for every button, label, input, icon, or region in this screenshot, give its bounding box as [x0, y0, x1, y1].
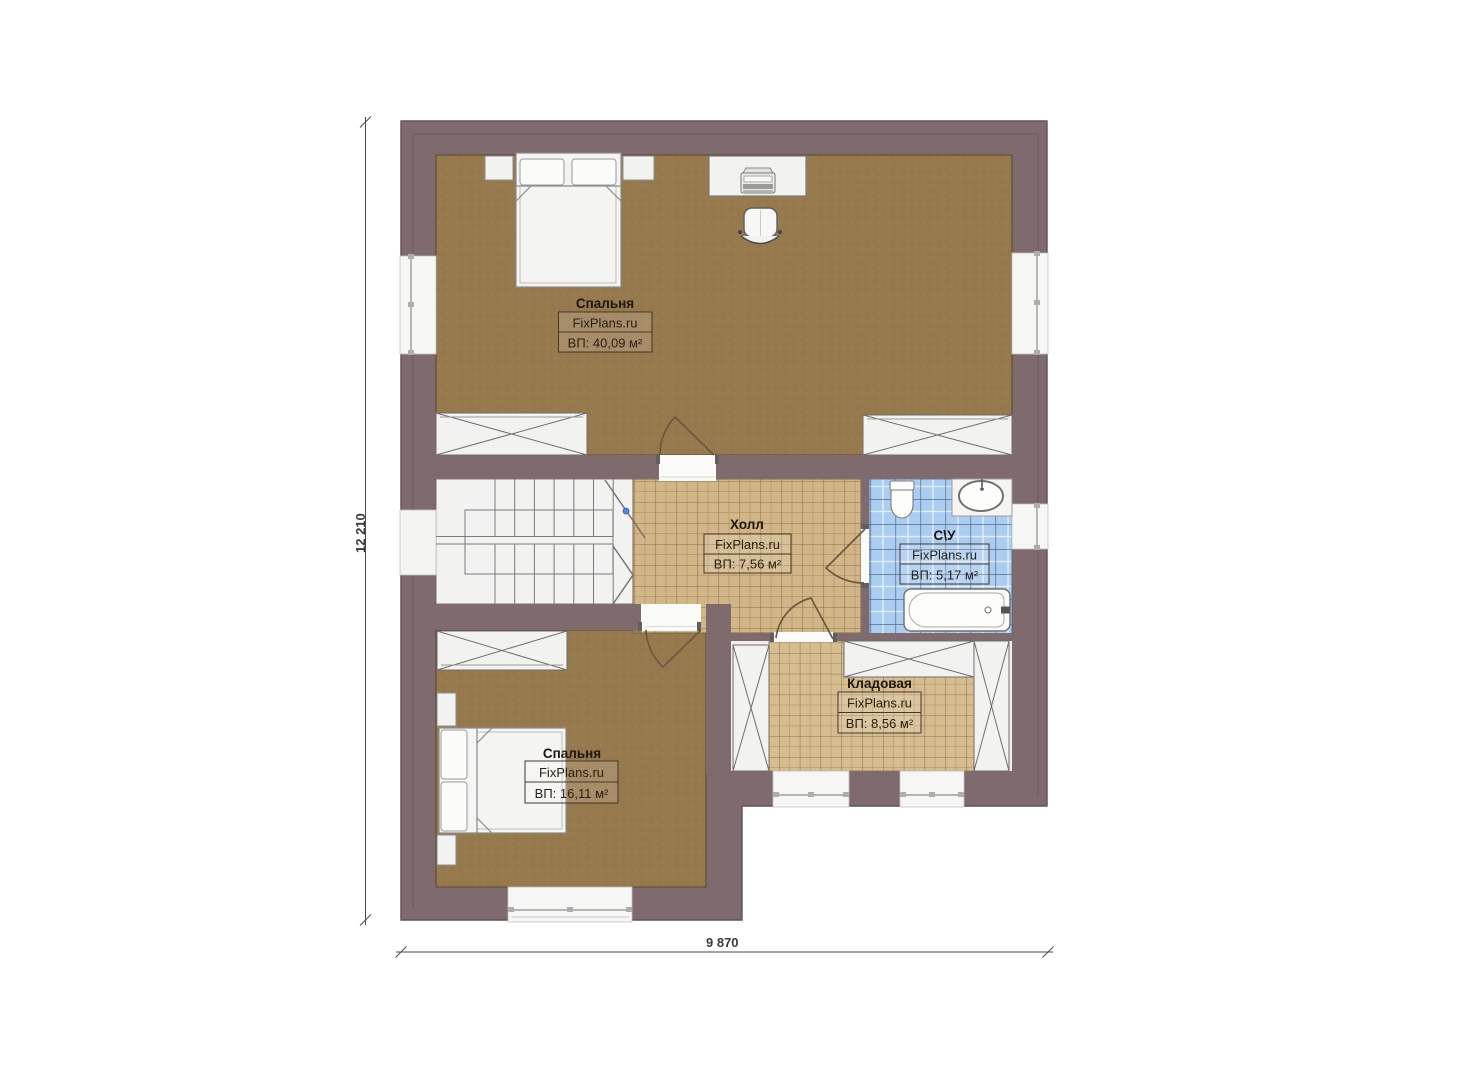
svg-text:ВП: 5,17 м²: ВП: 5,17 м²	[911, 568, 979, 583]
svg-text:Спальня: Спальня	[576, 296, 634, 311]
svg-text:С\У: С\У	[934, 528, 957, 543]
svg-text:12 210: 12 210	[353, 513, 368, 553]
svg-text:ВП: 40,09 м²: ВП: 40,09 м²	[568, 336, 643, 351]
svg-text:FixPlans.ru: FixPlans.ru	[912, 548, 977, 563]
svg-text:ВП: 7,56 м²: ВП: 7,56 м²	[714, 557, 782, 572]
svg-text:FixPlans.ru: FixPlans.ru	[715, 537, 780, 552]
svg-text:FixPlans.ru: FixPlans.ru	[572, 316, 637, 331]
svg-text:ВП: 16,11 м²: ВП: 16,11 м²	[535, 786, 609, 801]
svg-text:Кладовая: Кладовая	[847, 676, 912, 691]
svg-text:FixPlans.ru: FixPlans.ru	[847, 696, 912, 711]
svg-text:Холл: Холл	[730, 517, 764, 532]
svg-text:Спальня: Спальня	[543, 746, 601, 761]
svg-text:9 870: 9 870	[706, 935, 739, 950]
svg-text:FixPlans.ru: FixPlans.ru	[539, 765, 604, 780]
svg-text:ВП: 8,56 м²: ВП: 8,56 м²	[846, 716, 914, 731]
